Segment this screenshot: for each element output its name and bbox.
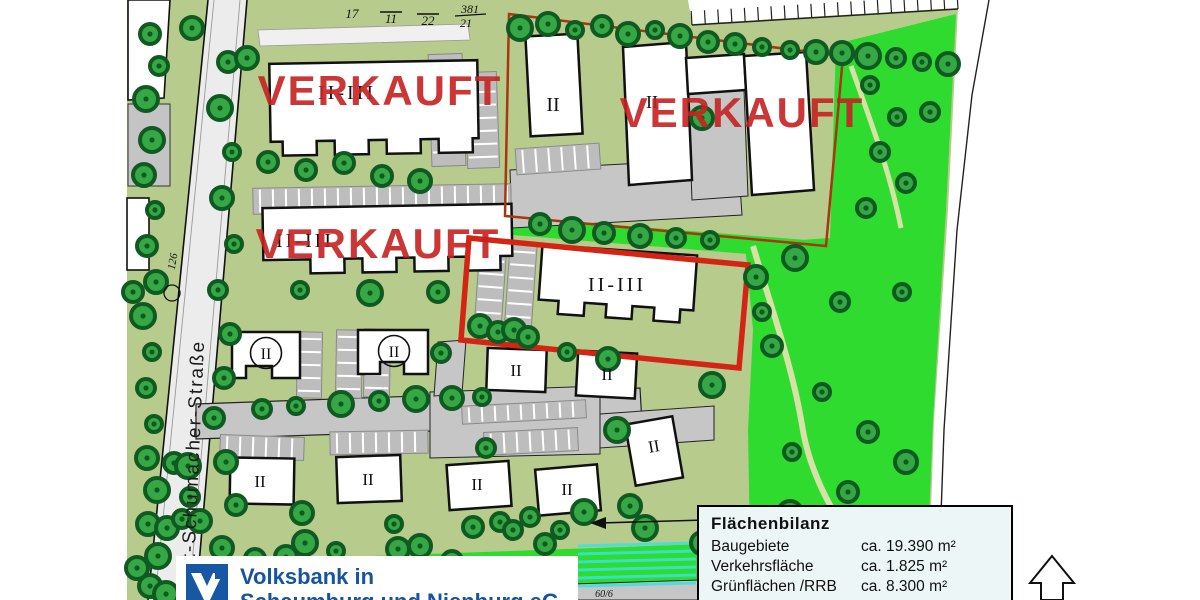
building-ne [525, 34, 582, 137]
legend-value: ca. 19.390 m² [861, 537, 956, 557]
volksbank-logo-icon [186, 564, 228, 600]
parcel-number: 21 [460, 16, 472, 30]
site-plan-page: II-III II-III II-III II II II II II II I… [0, 0, 1200, 600]
north-arrow [1030, 556, 1074, 600]
sold-stamp-2: VERKAUFT [256, 220, 501, 267]
legend-row: Baugebiete ca. 19.390 m² [711, 537, 1001, 557]
existing-block [128, 0, 170, 100]
volksbank-name-line2: Schaumburg und Nienburg eG [240, 589, 559, 600]
volksbank-name-line1: Volksbank in [240, 564, 559, 589]
building-label: II [471, 475, 483, 494]
building-ne-top-bar [686, 54, 746, 94]
parcel-number: 11 [385, 11, 397, 26]
sold-stamp-3: VERKAUFT [620, 89, 865, 136]
legend-value: ca. 1.825 m² [861, 557, 947, 577]
building-label: II [546, 94, 559, 116]
building-label: II [254, 472, 266, 491]
parcel-number: 60/6 [595, 589, 613, 600]
sold-stamp-1: VERKAUFT [258, 67, 503, 114]
legend-title: Flächenbilanz [711, 514, 1001, 534]
volksbank-v-icon [186, 564, 228, 600]
legend-value: ca. 8.300 m² [861, 577, 947, 597]
parcel-number: 22 [422, 13, 436, 28]
building-label: II [510, 361, 522, 380]
legend-row: Verkehrsfläche ca. 1.825 m² [711, 557, 1001, 577]
legend-label: Verkehrsfläche [711, 557, 861, 577]
building-label: II [362, 470, 374, 489]
parcel-number: 17 [346, 6, 360, 21]
building-label: II [601, 365, 613, 384]
legend-label: Grünflächen /RRB [711, 577, 861, 597]
legend-row: Grünflächen /RRB ca. 8.300 m² [711, 577, 1001, 597]
volksbank-logo-bar: Volksbank in Schaumburg und Nienburg eG [176, 556, 578, 600]
building-label: II [261, 346, 272, 363]
building-label-available: II-III [588, 274, 646, 296]
building-label: II [561, 480, 573, 499]
legend-label: Baugebiete [711, 537, 861, 557]
area-summary-panel: Flächenbilanz Baugebiete ca. 19.390 m² V… [697, 505, 1013, 600]
parcel-number: 381 [460, 2, 479, 16]
site-plan-map: II-III II-III II-III II II II II II II I… [0, 0, 1200, 600]
building-label: II [389, 344, 400, 361]
volksbank-name: Volksbank in Schaumburg und Nienburg eG [240, 564, 559, 600]
